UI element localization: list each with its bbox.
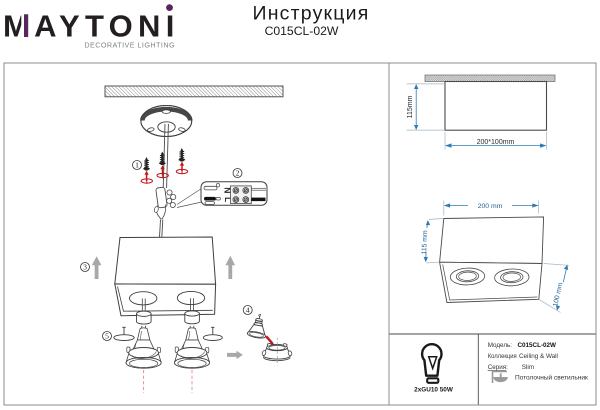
svg-text:Slim: Slim	[522, 364, 534, 371]
svg-text:C015CL-02W: C015CL-02W	[265, 24, 339, 38]
svg-text:2: 2	[236, 169, 240, 178]
svg-text:Ceiling & Wall: Ceiling & Wall	[519, 353, 558, 360]
svg-text:200*100mm: 200*100mm	[477, 139, 515, 146]
svg-text:115mm: 115mm	[407, 95, 414, 118]
svg-text:C015CL-02W: C015CL-02W	[518, 342, 557, 349]
svg-text:MAYTONI: MAYTONI	[3, 9, 180, 44]
svg-text:4: 4	[246, 306, 250, 315]
svg-text:3: 3	[83, 263, 87, 272]
svg-text:Потолочный светильник: Потолочный светильник	[515, 373, 588, 381]
svg-text:2xGU10 50W: 2xGU10 50W	[414, 386, 454, 393]
svg-text:115 mm: 115 mm	[421, 230, 429, 255]
svg-text:5: 5	[105, 332, 109, 341]
svg-text:Серия:: Серия:	[488, 364, 508, 371]
svg-text:200 mm: 200 mm	[478, 203, 503, 210]
svg-text:100 mm: 100 mm	[552, 282, 564, 308]
svg-text:Инструкция: Инструкция	[253, 3, 370, 25]
svg-text:Модель:: Модель:	[488, 342, 513, 349]
svg-text:Коллекция: Коллекция	[488, 353, 517, 360]
svg-text:DECORATIVE LIGHTING: DECORATIVE LIGHTING	[84, 41, 175, 50]
svg-text:1: 1	[135, 161, 139, 170]
